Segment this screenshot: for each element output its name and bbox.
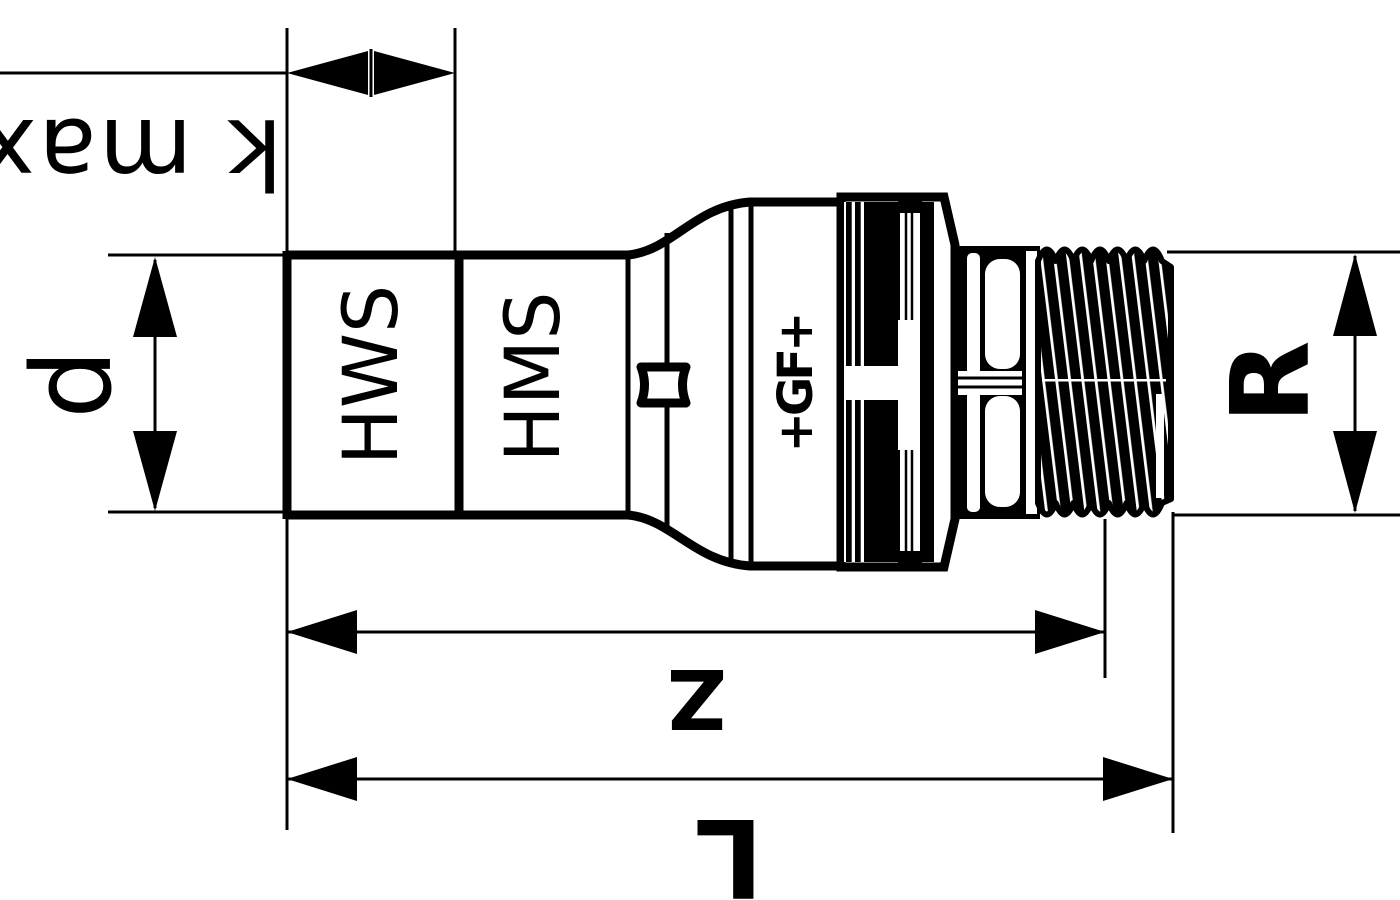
- kmax-arrow-left-icon: [287, 51, 368, 95]
- manufacturer-logo: +GF+: [772, 316, 820, 453]
- collar-smooth-bar-vertical: [898, 320, 920, 450]
- kmax-arrow-right-icon: [374, 51, 455, 95]
- insertion-slot: [641, 367, 686, 403]
- z-dimension-label: Z: [667, 656, 726, 738]
- z-arrow-left-icon: [287, 610, 357, 654]
- collar-window-cap-bottom: [898, 551, 922, 564]
- thread-end-relief: [1156, 394, 1164, 498]
- grip-collar: [841, 197, 955, 567]
- l-dimension-label: L: [695, 802, 764, 900]
- d-arrow-down-icon: [133, 431, 177, 511]
- kmax-dimension-label: k max: [0, 105, 283, 201]
- collar-window-cap-top: [898, 200, 922, 213]
- d-arrow-up-icon: [133, 257, 177, 337]
- r-dimension-label: R: [1218, 340, 1326, 423]
- thread-profile: [1038, 250, 1171, 515]
- socket-marking-hms: HMS: [495, 292, 571, 463]
- thread-pitch-line: [1042, 379, 1166, 382]
- collar-black-column: [920, 202, 934, 562]
- l-arrow-left-icon: [287, 757, 357, 801]
- z-arrow-right-icon: [1035, 610, 1105, 654]
- l-arrow-right-icon: [1103, 757, 1173, 801]
- male-thread: [1038, 250, 1171, 515]
- technical-drawing-page: k max d HWS HMS +GF+ Z L R: [0, 0, 1400, 900]
- d-dimension-label: d: [17, 349, 127, 419]
- neck-seal-section: [955, 246, 1040, 519]
- socket-marking-hws: HWS: [333, 285, 409, 466]
- r-arrow-up-icon: [1333, 254, 1377, 336]
- collar-smooth-bar-horizontal: [846, 366, 902, 400]
- r-arrow-down-icon: [1333, 431, 1377, 513]
